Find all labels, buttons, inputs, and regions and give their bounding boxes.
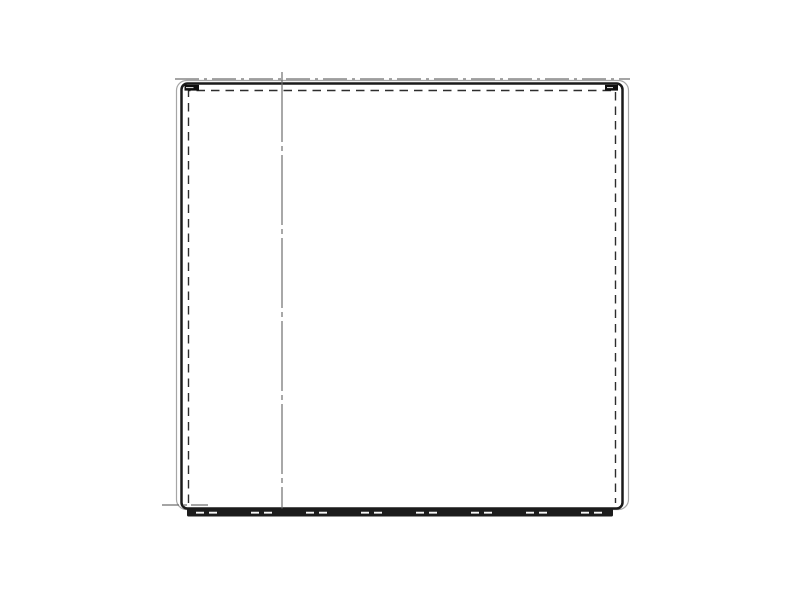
technical-drawing-canvas <box>0 0 800 600</box>
bottom-base-bar <box>187 509 613 517</box>
outer-shell-outline <box>177 81 629 510</box>
hidden-edge-dashed-outline <box>189 91 616 504</box>
drawing-page <box>0 0 800 600</box>
door-panel-outline <box>182 84 623 509</box>
